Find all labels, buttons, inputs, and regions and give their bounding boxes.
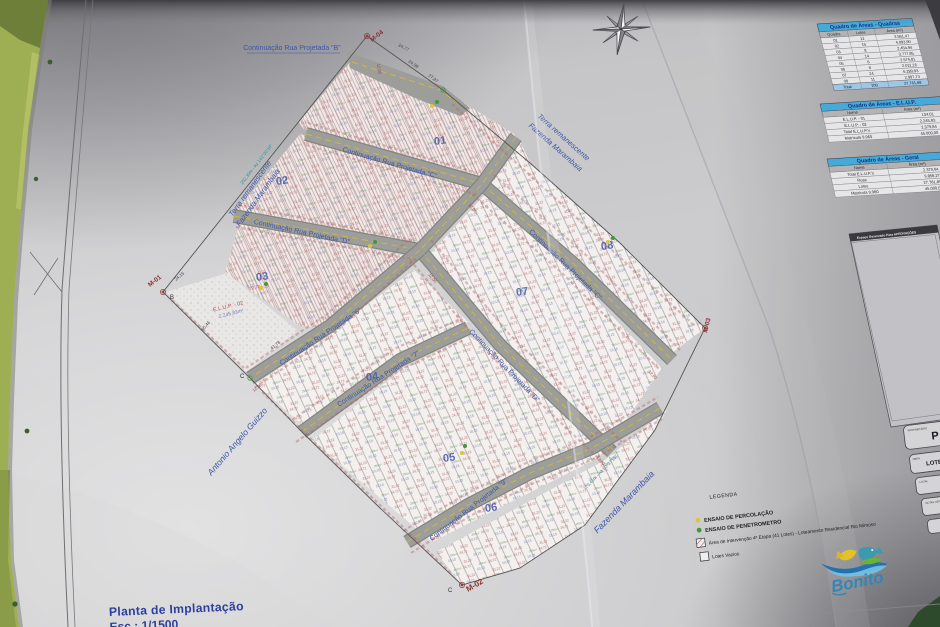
- svg-text:2.574,81: 2.574,81: [900, 56, 916, 62]
- svg-text:6.289,93: 6.289,93: [903, 68, 920, 74]
- svg-text:2.011,16: 2.011,16: [901, 62, 918, 68]
- svg-text:2.245,83: 2.245,83: [919, 118, 936, 124]
- svg-text:07: 07: [515, 285, 529, 299]
- svg-text:Continuação Rua Projetada "B": Continuação Rua Projetada "B": [243, 45, 341, 52]
- svg-text:Área (m²): Área (m²): [886, 27, 904, 33]
- svg-text:Nome: Nome: [853, 165, 865, 171]
- svg-text:2.997,73: 2.997,73: [904, 74, 921, 80]
- svg-text:3.561,47: 3.561,47: [893, 33, 909, 39]
- svg-text:9.858,27: 9.858,27: [924, 173, 940, 179]
- svg-text:2.454,94: 2.454,94: [896, 45, 913, 51]
- svg-text:C: C: [240, 374, 245, 380]
- svg-text:4.093,90: 4.093,90: [895, 39, 912, 45]
- svg-text:Quadra: Quadra: [827, 31, 842, 37]
- svg-text:03: 03: [255, 270, 269, 284]
- svg-text:P: P: [931, 430, 940, 443]
- svg-text:45.000,00: 45.000,00: [924, 185, 940, 191]
- svg-text:B: B: [170, 295, 174, 301]
- svg-text:Lotes: Lotes: [855, 30, 866, 35]
- svg-text:Área (m²): Área (m²): [903, 106, 922, 112]
- svg-text:Total: Total: [843, 84, 853, 89]
- svg-text:Lotes: Lotes: [858, 183, 869, 189]
- svg-text:3.777,95: 3.777,95: [898, 51, 915, 57]
- svg-text:2.379,84: 2.379,84: [921, 124, 938, 130]
- svg-text:01: 01: [433, 134, 447, 148]
- svg-text:134,01: 134,01: [921, 111, 935, 117]
- svg-text:Nome: Nome: [847, 110, 860, 116]
- svg-text:27.761,89: 27.761,89: [903, 80, 922, 86]
- svg-text:05: 05: [442, 451, 456, 465]
- svg-text:Ruas: Ruas: [857, 177, 867, 182]
- svg-text:27.761,89: 27.761,89: [923, 179, 940, 185]
- svg-text:06: 06: [484, 501, 498, 515]
- svg-text:C: C: [448, 588, 453, 594]
- svg-text:2.379,84: 2.379,84: [922, 166, 939, 172]
- svg-text:Área (m²): Área (m²): [908, 161, 927, 167]
